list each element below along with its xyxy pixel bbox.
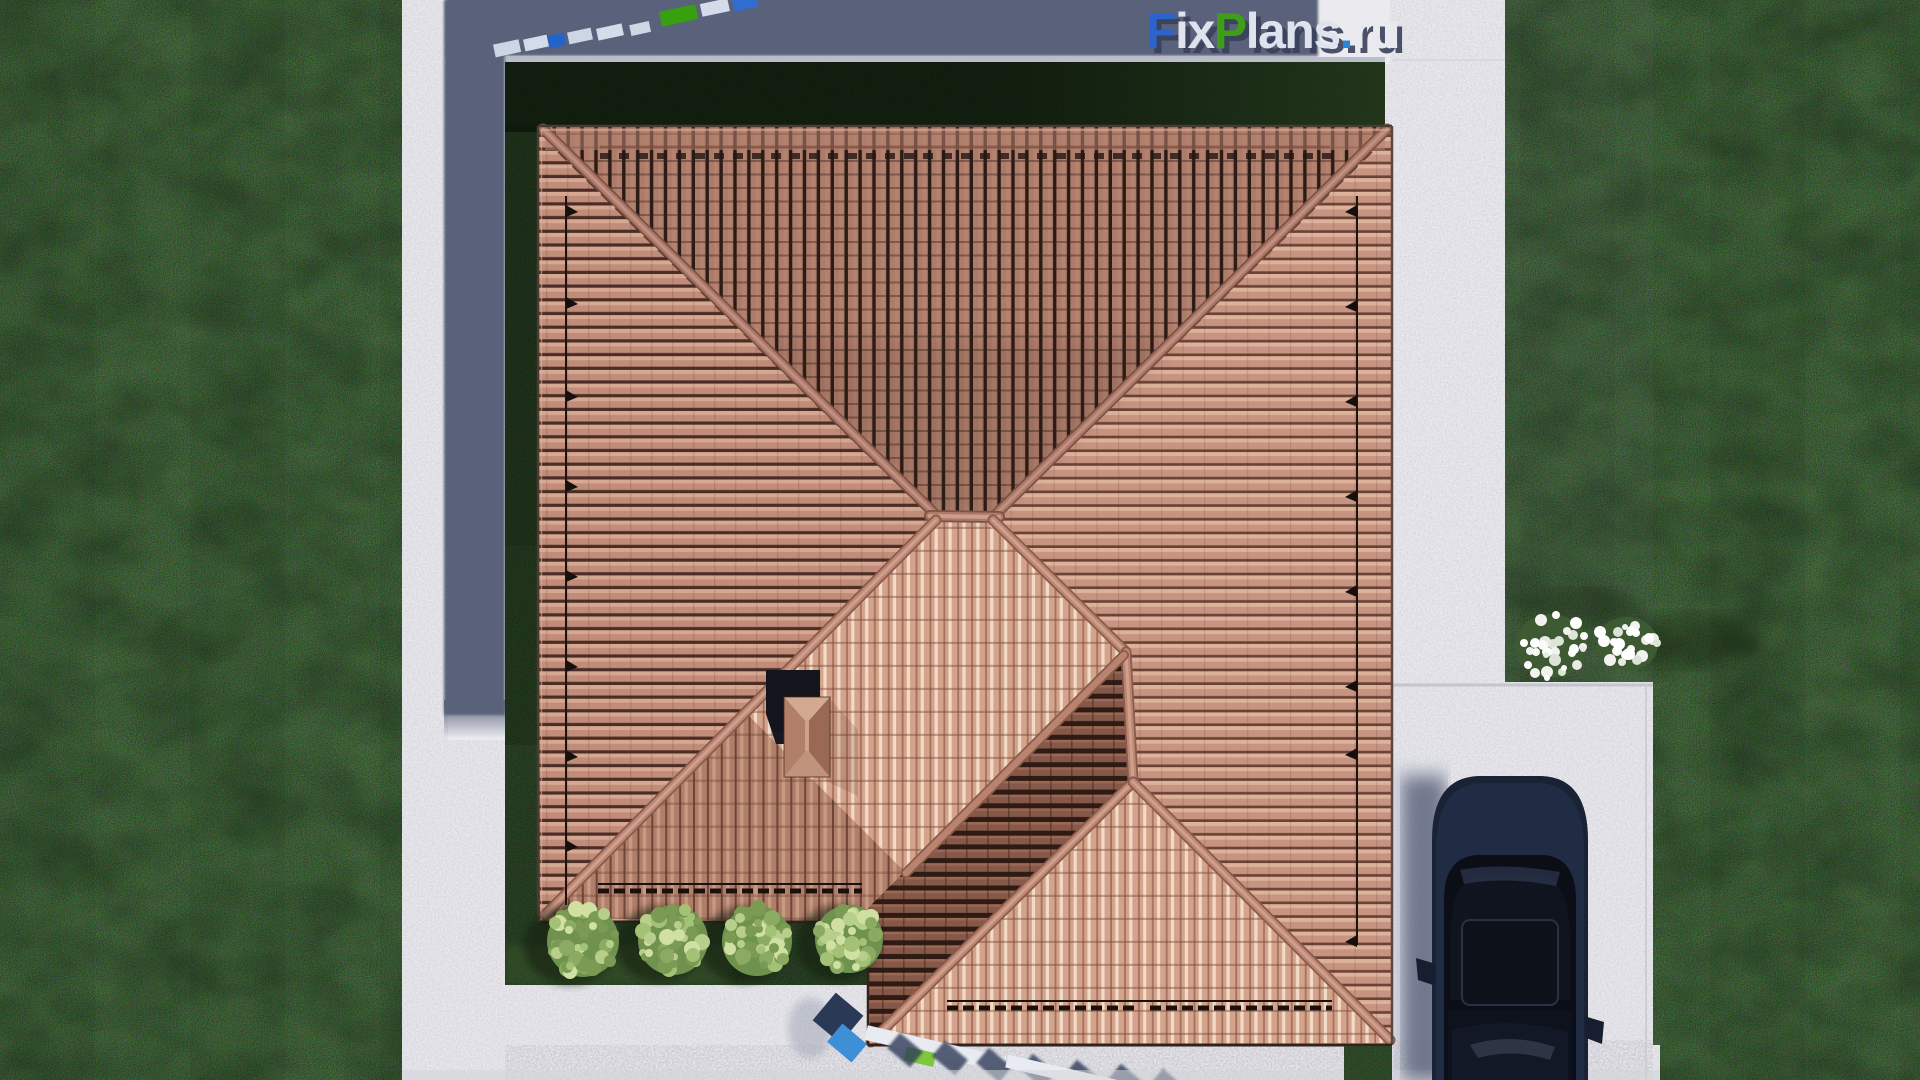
- svg-text:FixPlans.ru: FixPlans.ru: [1146, 3, 1399, 59]
